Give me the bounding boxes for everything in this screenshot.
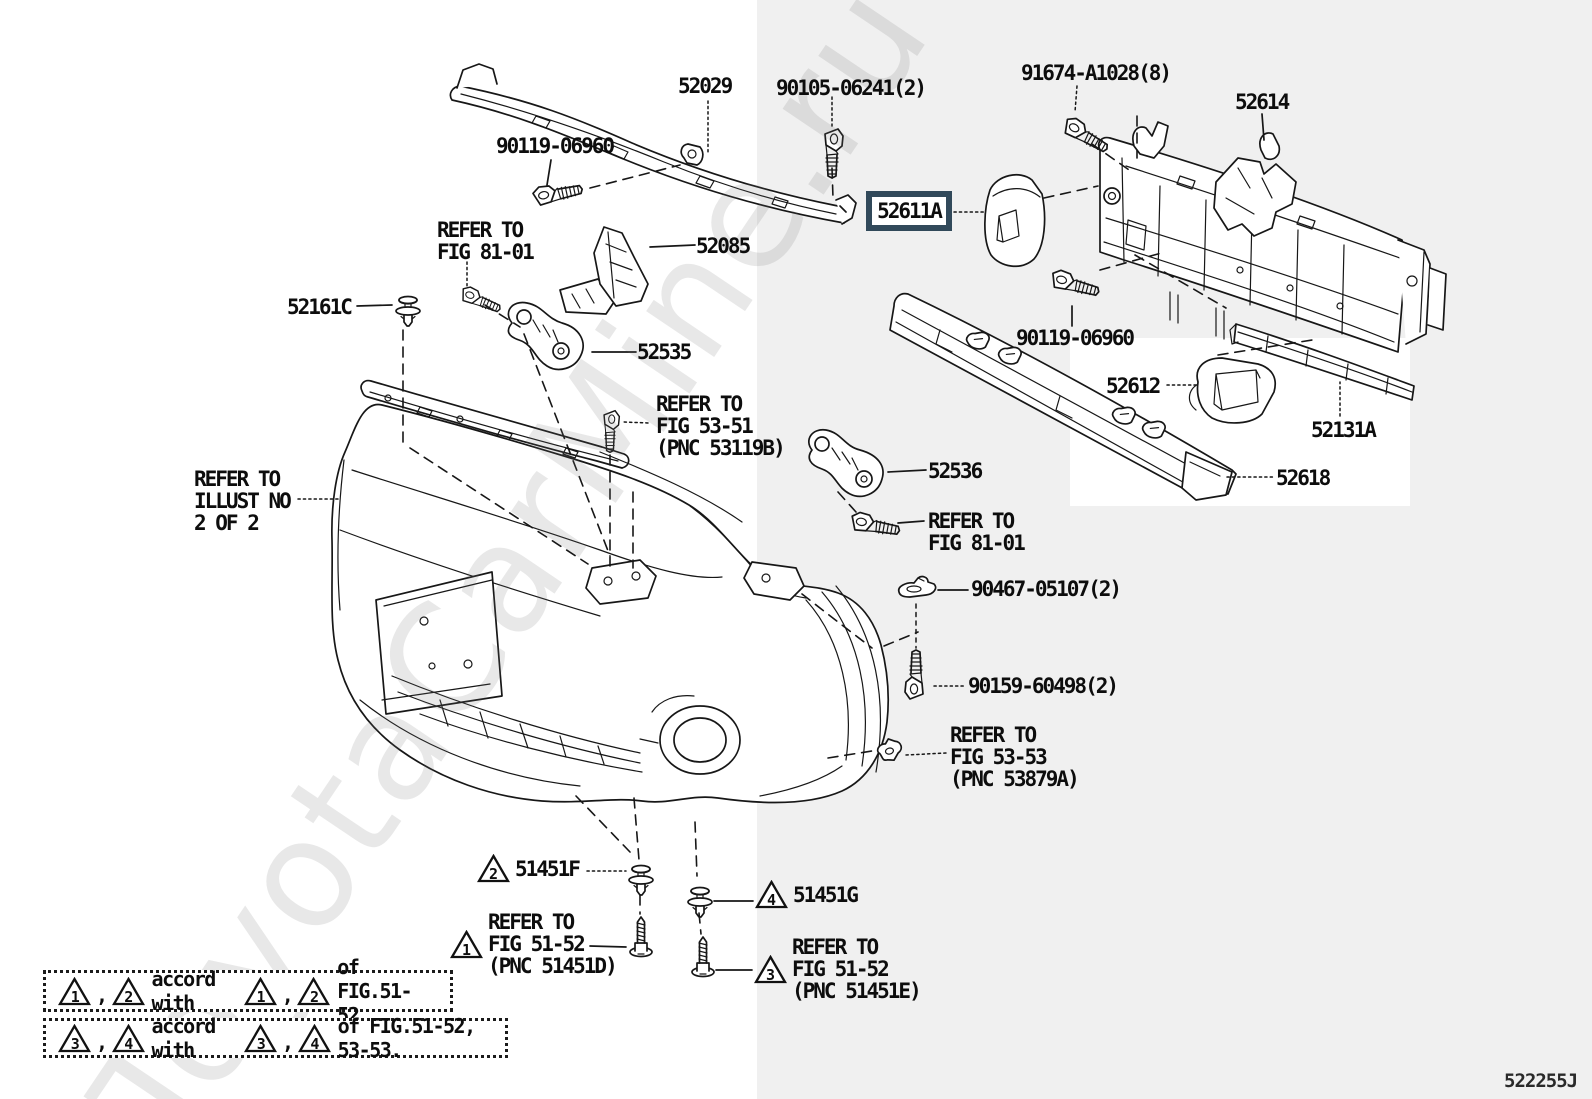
absorber-52611a-drawing bbox=[985, 175, 1045, 266]
bolt-fig5351-icon bbox=[604, 411, 619, 453]
triangle-4-icon: 4 bbox=[112, 1024, 145, 1053]
part-label-52611a: 52611A bbox=[877, 199, 941, 223]
triangle-1-icon: 1 bbox=[58, 977, 91, 1006]
triangle-1-icon: 1 bbox=[244, 977, 277, 1006]
triangle-2-icon: 2 bbox=[297, 977, 330, 1006]
legend-text: of FIG.51-52, 53-53. bbox=[338, 1014, 493, 1062]
triangle-3-icon: 3 bbox=[754, 955, 787, 984]
note-fig5351: REFER TO FIG 53-51 (PNC 53119B) bbox=[656, 393, 784, 459]
screw-51451e-icon bbox=[692, 937, 714, 977]
part-label-51451f: 51451F bbox=[515, 858, 579, 880]
triangle-4-icon: 4 bbox=[755, 880, 788, 909]
part-label-52612[interactable]: 52612 bbox=[1106, 375, 1159, 397]
callout-fig5152-d: 1 REFER TO FIG 51-52 (PNC 51451D) bbox=[450, 911, 616, 977]
triangle-3-icon: 3 bbox=[244, 1024, 277, 1053]
part-label-52618[interactable]: 52618 bbox=[1276, 467, 1329, 489]
figure-code: 522255J bbox=[1504, 1070, 1577, 1092]
part-label-90467[interactable]: 90467-05107(2) bbox=[971, 578, 1120, 600]
triangle-2-icon: 2 bbox=[477, 854, 510, 883]
part-label-52161c[interactable]: 52161C bbox=[287, 296, 351, 318]
bolt-fig8101-right-icon bbox=[850, 511, 901, 537]
separator: , bbox=[96, 983, 107, 1007]
bolt-90119-left-icon bbox=[532, 178, 584, 206]
legend-text: accord with bbox=[152, 1014, 237, 1062]
part-label-52131a[interactable]: 52131A bbox=[1311, 419, 1375, 441]
bracket-52536-drawing bbox=[809, 430, 883, 497]
callout-51451g[interactable]: 4 51451G bbox=[755, 880, 857, 909]
part-label-91674[interactable]: 91674-A1028(8) bbox=[1021, 62, 1170, 84]
triangle-1-icon: 1 bbox=[450, 930, 483, 959]
bolt-90119-right-icon bbox=[1050, 269, 1102, 299]
part-label-90159[interactable]: 90159-60498(2) bbox=[968, 675, 1117, 697]
separator: , bbox=[282, 983, 293, 1007]
part-label-90119-left[interactable]: 90119-06960 bbox=[496, 135, 613, 157]
callout-51451f[interactable]: 2 51451F bbox=[477, 854, 579, 883]
note-fig5152-e: REFER TO FIG 51-52 (PNC 51451E) bbox=[792, 936, 920, 1002]
legend-row-2: 3 , 4 accord with 3 , 4 of FIG.51-52, 53… bbox=[43, 1018, 508, 1058]
part-label-52535[interactable]: 52535 bbox=[637, 341, 690, 363]
callout-fig5152-e: 3 REFER TO FIG 51-52 (PNC 51451E) bbox=[754, 936, 920, 1002]
triangle-3-icon: 3 bbox=[58, 1024, 91, 1053]
legend-text: accord with bbox=[152, 967, 237, 1015]
part-label-52536[interactable]: 52536 bbox=[928, 460, 981, 482]
parts-diagram-canvas: ToyotaCarMine.ru bbox=[0, 0, 1592, 1099]
note-fig5152-d: REFER TO FIG 51-52 (PNC 51451D) bbox=[488, 911, 616, 977]
screw-51451d-icon bbox=[630, 917, 652, 957]
note-illust: REFER TO ILLUST NO 2 OF 2 bbox=[194, 468, 290, 534]
legend-row-1: 1 , 2 accord with 1 , 2 of FIG.51-52. bbox=[43, 970, 453, 1012]
clip-51451g-icon bbox=[688, 888, 712, 918]
separator: , bbox=[282, 1030, 293, 1054]
part-label-90105[interactable]: 90105-06241(2) bbox=[776, 77, 925, 99]
note-fig8101-left: REFER TO FIG 81-01 bbox=[437, 219, 533, 263]
bolt-90105-icon bbox=[825, 129, 843, 178]
part-label-90119-right[interactable]: 90119-06960 bbox=[1016, 327, 1133, 349]
clip-90467-icon bbox=[899, 577, 936, 597]
highlighted-part-52611a[interactable]: 52611A bbox=[866, 191, 952, 231]
note-fig8101-right: REFER TO FIG 81-01 bbox=[928, 510, 1024, 554]
part-label-52085[interactable]: 52085 bbox=[696, 235, 749, 257]
clip-51451f-icon bbox=[629, 866, 653, 896]
triangle-4-icon: 4 bbox=[298, 1024, 331, 1053]
part-label-52029[interactable]: 52029 bbox=[678, 75, 731, 97]
note-fig5353: REFER TO FIG 53-53 (PNC 53879A) bbox=[950, 724, 1078, 790]
support-52085-drawing bbox=[560, 227, 648, 314]
triangle-2-icon: 2 bbox=[112, 977, 145, 1006]
bolt-90159-icon bbox=[905, 650, 923, 699]
separator: , bbox=[96, 1030, 107, 1054]
clip-52161c-icon bbox=[396, 297, 420, 327]
part-label-52614[interactable]: 52614 bbox=[1235, 91, 1288, 113]
part-label-51451g: 51451G bbox=[793, 884, 857, 906]
bolt-fig8101-left-icon bbox=[459, 285, 503, 315]
